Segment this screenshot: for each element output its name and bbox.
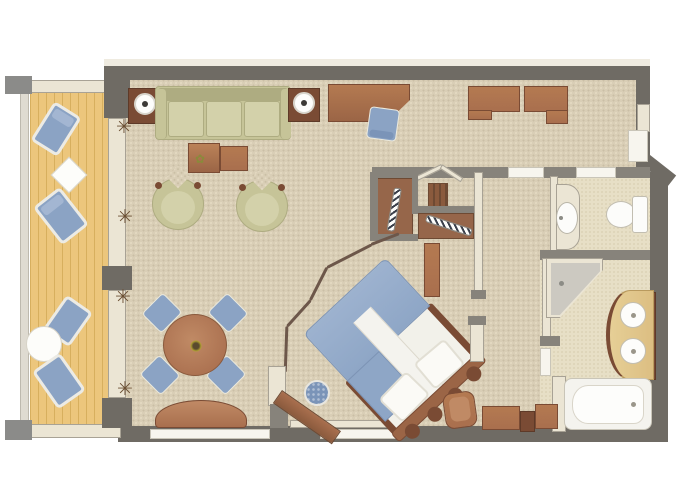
bedroom-armchair [442,390,479,430]
bathroom-wall-cap [540,336,560,346]
balcony-rail-left [20,92,29,424]
entry-door [628,130,648,162]
bedroom-pier-cap [468,316,486,325]
floor-plan: ✳ ✳ ✳ ✳ ✿ [0,0,680,486]
sofa-cushion [206,101,242,137]
sink-drain [631,313,636,318]
wall-cabinet-return [546,110,568,124]
washbasin [556,202,578,234]
sofa-cushion [244,101,280,137]
sofa-cushion [168,101,204,137]
shower-drain [559,281,564,286]
closet-wall-mid [416,206,482,213]
planter-icon: ✳ [114,380,136,400]
planter-icon: ✳ [112,288,134,308]
nightstand [424,243,440,297]
table-plant-icon: ✿ [195,150,205,169]
sofa-back [158,88,288,101]
corridor-wall [474,172,483,298]
table-lamp [293,92,315,114]
glass-door-upper [108,118,126,268]
table-lamp [134,93,156,115]
armchair-seat [448,396,471,423]
desk-chair-back [369,129,394,139]
sofa-arm [156,89,167,139]
balcony-post-topleft [5,76,32,94]
coffee-table: ✿ [188,143,220,173]
sink [620,338,646,364]
door-threshold-corridor [508,167,544,178]
closet-wall-left [370,172,378,240]
bathroom-door-threshold [540,348,551,376]
wall-cabinet [468,86,520,112]
dining-table [163,314,227,376]
lounge-headrest [51,108,75,128]
tub-chair-seat [161,191,195,224]
balcony-rail-top [29,80,109,93]
bathtub-drain [631,402,636,407]
planter-icon: ✳ [114,208,136,228]
tub-chair [236,180,288,234]
bathtub [564,378,652,430]
tub-chair-seat [245,193,279,226]
tub-chair [152,178,204,232]
corridor-wall-cap [471,290,486,299]
wall-top [104,66,650,80]
faucet-dot [559,216,563,220]
tub-chair-arm-cap [155,182,162,189]
tub-chair-arm-cap [194,182,201,189]
dresser [482,406,520,430]
tub-chair-arm-cap [278,184,285,191]
pier-top [104,78,130,118]
balcony-post-bottomleft [5,420,32,440]
dining-centerpiece [190,340,202,352]
window-bottom-living [150,429,270,439]
wall-cabinet [524,86,568,112]
bedroom-pier [470,322,484,362]
sink-drain [631,349,636,354]
ottoman-pouf [304,380,330,406]
door-threshold-wc [576,167,616,178]
sofa [155,86,291,140]
dresser [535,404,558,429]
sink [620,302,646,328]
toilet-tank [632,196,648,233]
dresser-small [520,411,535,432]
coffee-table [220,146,248,171]
tub-chair-arm-cap [239,184,246,191]
entry-door-frame [637,104,650,132]
wall-cabinet-return [468,110,492,120]
pier-bottom [102,398,132,428]
desk-chair [366,106,400,142]
